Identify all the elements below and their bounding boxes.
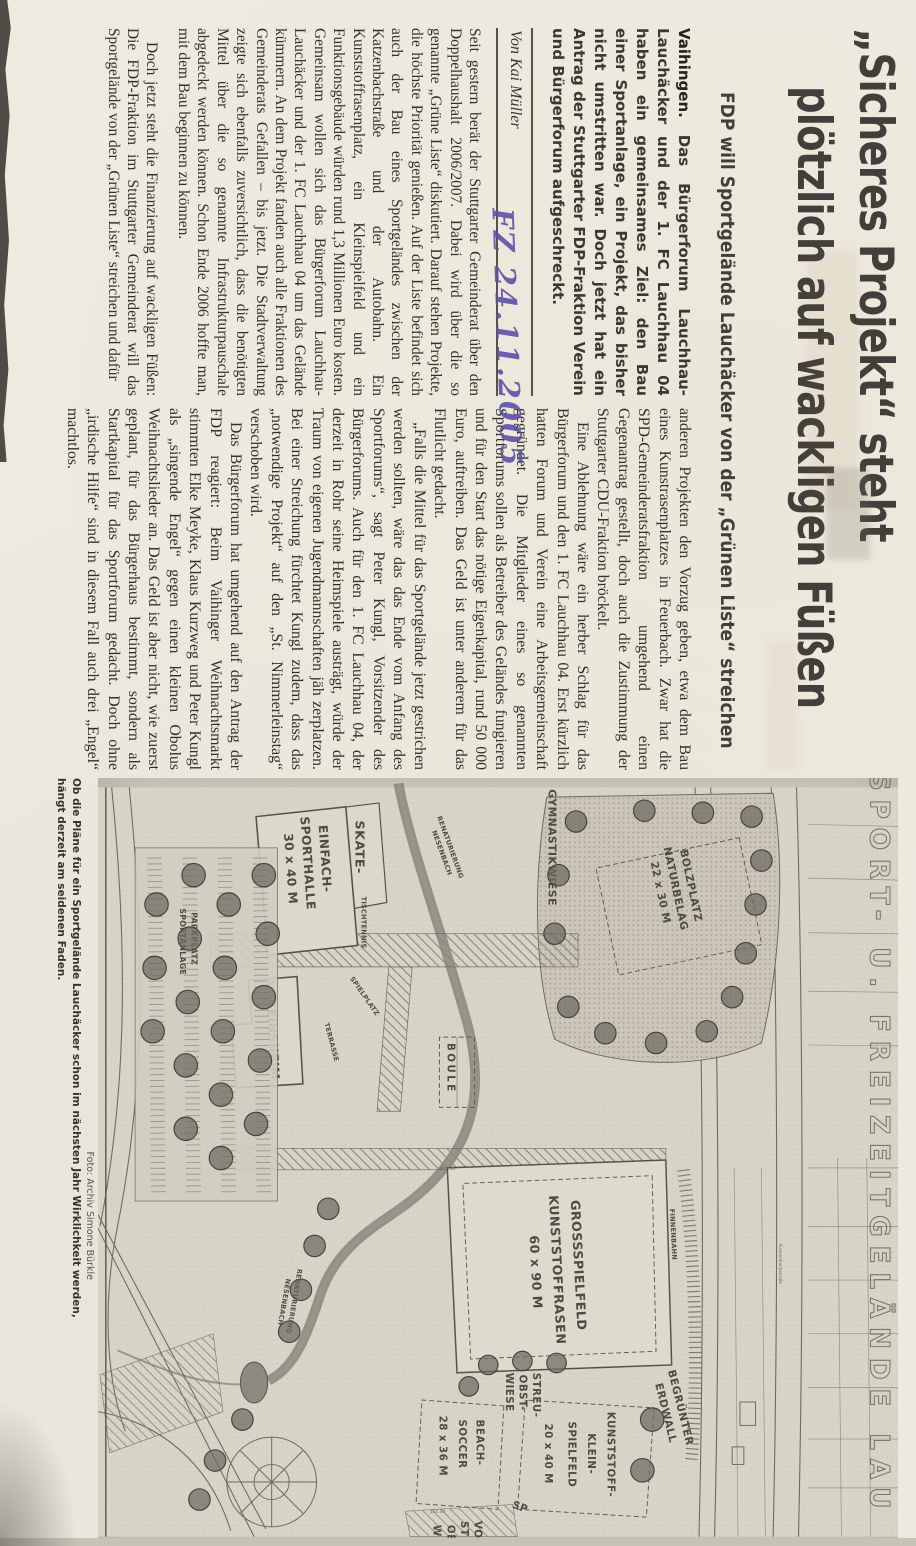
svg-text:W: W [431,1525,443,1537]
svg-text:OBST-: OBST- [516,1375,528,1411]
body-paragraph: Seit gestern berät der Stuttgarter Gemei… [174,28,485,396]
map-label-tischtennis: TISCHTENNIS [359,897,367,949]
svg-text:WIESE: WIESE [503,1373,515,1412]
svg-text:BEACH-: BEACH- [474,1420,486,1466]
svg-text:VO: VO [472,1521,484,1538]
newspaper-scan: „Sicheres Projekt“ steht plötzlich auf w… [0,0,916,1546]
map-label-gymnastikwiese: GYMNASTIKWIESE [546,789,559,906]
svg-text:20 x 40 M: 20 x 40 M [542,1423,554,1483]
lede-location: Vaihingen. [675,28,693,118]
svg-text:STREU-: STREU- [530,1373,542,1418]
article-column-1: Vaihingen. Das Bürgerforum Lauchhau-Lauc… [103,28,694,396]
elevation-label: 451.50 [430,1509,446,1515]
photo-block: Katzenbachstraße BOLZPLATZ NATURBELAG 22… [53,778,898,1546]
svg-text:SOCCER: SOCCER [456,1420,468,1469]
photo-credit: Foto: Archiv Simone Bürkle [84,778,95,1546]
newspaper-page: „Sicheres Projekt“ steht plötzlich auf w… [0,0,916,1546]
body-paragraph: „Falls die Mittel für das Sportgelände j… [245,408,429,770]
gray-smudge [826,468,870,560]
body-paragraph: anderen Projekten den Vorzug geben, etwa… [592,408,694,770]
elevation-label: 461.50 [439,1166,455,1172]
circle-feature [227,1437,317,1527]
svg-text:ST: ST [458,1521,470,1536]
subtitle: FDP will Sportgelände Lauchäcker von der… [716,92,738,749]
svg-text:KUNSTSTOFF-: KUNSTSTOFF- [604,1412,616,1497]
svg-text:SPIELFELD: SPIELFELD [565,1422,577,1488]
body-paragraph: Doch jetzt steht die Finanzierung auf wa… [103,28,161,396]
street-name-label: Katzenbachstraße [777,1244,784,1285]
article-column-2: anderen Projekten den Vorzug geben, etwa… [61,408,694,770]
svg-text:28 x 36 M: 28 x 36 M [436,1416,448,1476]
scan-edge [0,1538,916,1546]
body-paragraph: Das Bürgerforum hat umgehend auf den Ant… [61,408,245,770]
lede-paragraph: Vaihingen. Das Bürgerforum Lauchhau-Lauc… [547,28,694,396]
byline: Von Kai Müller [507,30,524,129]
scan-corner-shadow [0,1400,78,1546]
svg-text:KLEIN-: KLEIN- [585,1433,597,1474]
site-plan-map: Katzenbachstraße BOLZPLATZ NATURBELAG 22… [98,778,898,1546]
pond [240,1362,267,1403]
ink-showthrough-smudge [766,640,798,770]
lede-text: Das Bürgerforum Lauchhau-Lauchäcker und … [549,28,693,396]
map-label-skatepark: SKATE- [353,821,368,874]
map-outline-title: SPORT- U. FREIZEITGELÄNDE LAU [864,778,896,1517]
map-label-boule: BOULE [444,1043,456,1094]
